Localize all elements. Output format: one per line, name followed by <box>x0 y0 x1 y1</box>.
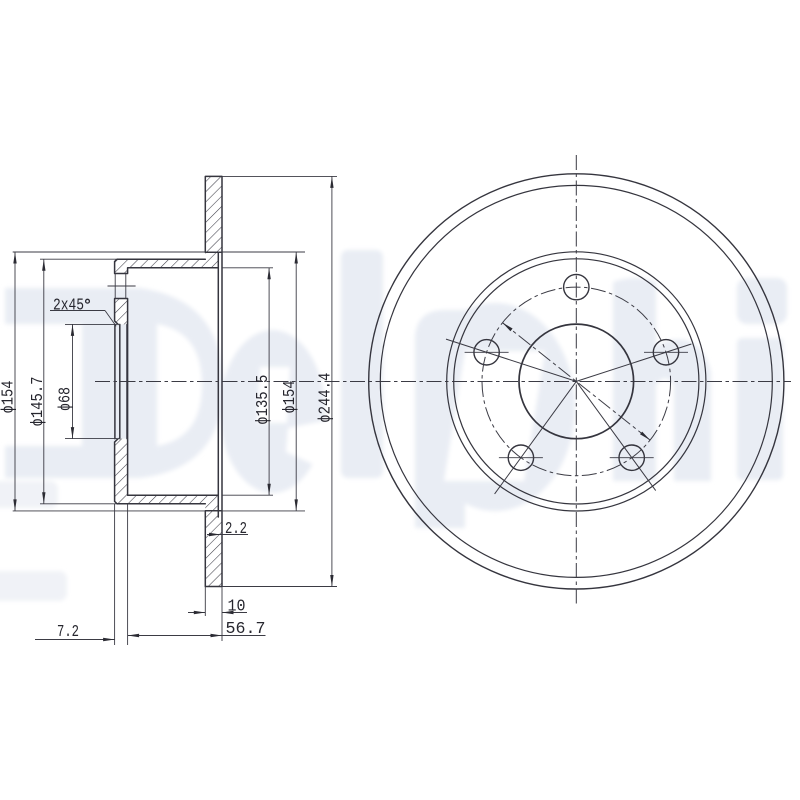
svg-text:56.7: 56.7 <box>226 619 266 638</box>
svg-text:7.2: 7.2 <box>57 622 79 641</box>
svg-text:ϕ135.5: ϕ135.5 <box>253 375 272 425</box>
svg-text:ϕ244.4: ϕ244.4 <box>315 373 334 423</box>
svg-text:ϕ154: ϕ154 <box>0 380 18 413</box>
svg-text:10: 10 <box>228 597 246 616</box>
svg-text:ϕ68: ϕ68 <box>56 387 75 411</box>
svg-text:2.2: 2.2 <box>225 519 247 538</box>
svg-text:2x45: 2x45 <box>53 296 84 315</box>
svg-text:ϕ145.7: ϕ145.7 <box>28 377 47 427</box>
svg-text:ϕ154: ϕ154 <box>280 380 299 413</box>
